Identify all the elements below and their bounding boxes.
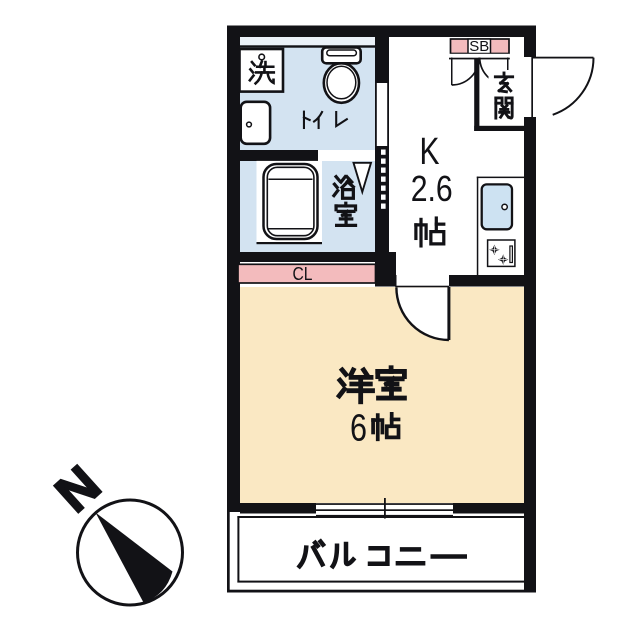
svg-text:K: K bbox=[420, 131, 440, 173]
svg-text:6: 6 bbox=[350, 408, 367, 450]
svg-text:SB: SB bbox=[469, 38, 489, 55]
svg-text:CL: CL bbox=[293, 263, 313, 284]
svg-text:2.6: 2.6 bbox=[411, 168, 453, 209]
